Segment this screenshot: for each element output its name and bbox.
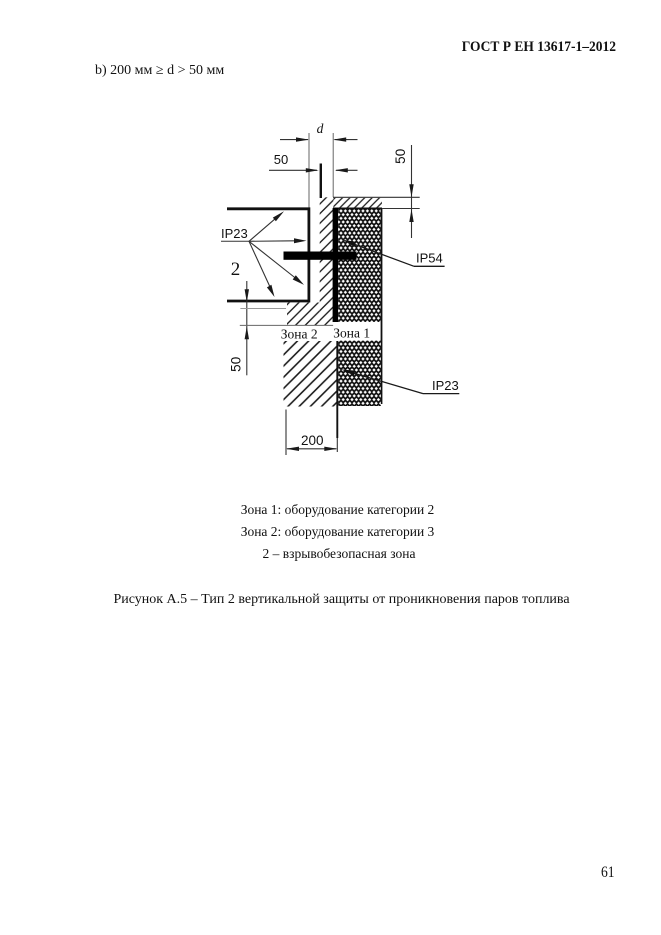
svg-text:IP23: IP23 bbox=[221, 226, 248, 241]
svg-text:50: 50 bbox=[229, 357, 244, 372]
svg-text:2: 2 bbox=[231, 259, 241, 280]
svg-text:IP23: IP23 bbox=[432, 378, 459, 393]
svg-text:50: 50 bbox=[393, 149, 408, 164]
svg-text:200: 200 bbox=[301, 433, 324, 448]
svg-text:Зона 1: Зона 1 bbox=[333, 325, 370, 340]
svg-text:d: d bbox=[317, 121, 324, 136]
svg-text:IP54: IP54 bbox=[416, 251, 443, 266]
svg-text:50: 50 bbox=[274, 152, 288, 167]
svg-text:Зона 2: Зона 2 bbox=[281, 326, 318, 341]
